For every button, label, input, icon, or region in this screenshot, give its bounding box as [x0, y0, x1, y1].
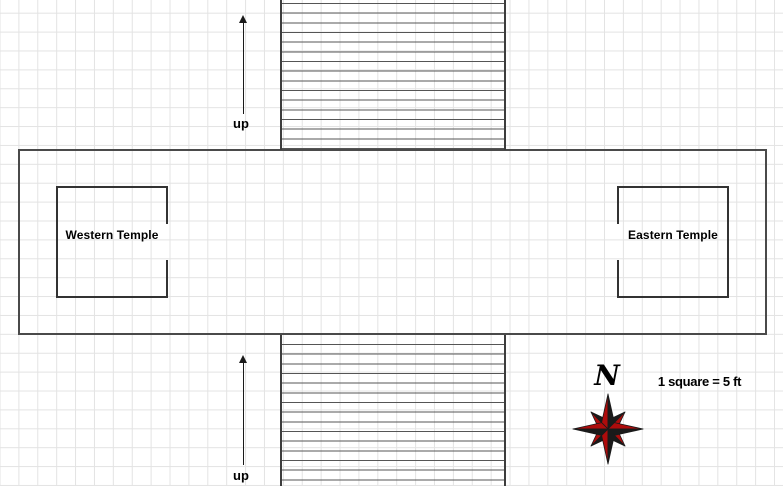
eastern-temple-west-wall-upper: [617, 186, 619, 224]
eastern-temple-north-wall: [617, 186, 729, 188]
compass-north-label: N: [586, 362, 628, 390]
compass-e-north-half: [608, 422, 643, 428]
western-temple-south-wall: [56, 296, 168, 298]
compass-point-south: [601, 429, 614, 464]
north-arrow-head-icon: [239, 15, 247, 23]
north-arrow-shaft: [243, 23, 244, 114]
south-arrow-head-icon: [239, 355, 247, 363]
dungeon-map-canvas: up up Western Temple Eastern Temple N: [0, 0, 783, 486]
western-temple-east-wall-upper: [166, 186, 168, 224]
eastern-temple-west-wall-lower: [617, 260, 619, 298]
south-stairs-up-label: up: [226, 468, 256, 483]
compass-point-north: [601, 394, 614, 429]
eastern-temple-label: Eastern Temple: [601, 228, 746, 242]
north-stairs-right-wall: [504, 0, 506, 150]
map-scale-note: 1 square = 5 ft: [642, 374, 757, 389]
western-temple-west-wall: [56, 186, 58, 298]
western-temple-north-wall: [56, 186, 168, 188]
compass-point-west: [573, 422, 608, 435]
western-temple-east-wall-lower: [166, 260, 168, 298]
compass-s-east-half: [608, 429, 614, 464]
south-stairs-treads: [282, 344, 504, 486]
compass-point-east: [608, 422, 643, 435]
compass-rose-icon: [571, 392, 645, 466]
south-stairs-right-wall: [504, 335, 506, 486]
eastern-temple-east-wall: [727, 186, 729, 298]
north-stairs-up-label: up: [226, 116, 256, 131]
compass-w-south-half: [573, 429, 608, 435]
north-stairs-treads: [282, 3, 504, 149]
south-arrow-shaft: [243, 363, 244, 465]
compass-w-north-half: [573, 422, 608, 428]
eastern-temple-south-wall: [617, 296, 729, 298]
western-temple-label: Western Temple: [40, 228, 185, 242]
